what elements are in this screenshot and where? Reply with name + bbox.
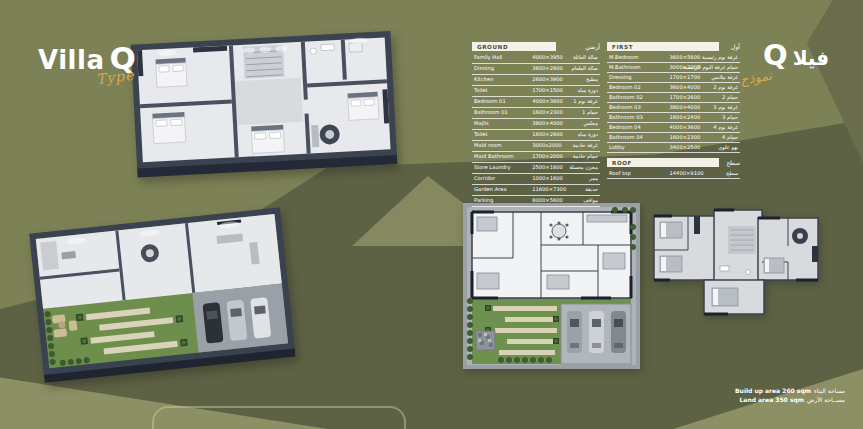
room-dimensions: 2500×1600 xyxy=(532,163,563,173)
room-name: Bedroom 04 xyxy=(609,123,641,132)
brand-title: VillaQ Type xyxy=(38,40,136,76)
table-row: M.Bathroom 3000×2000 حمام غرفة النوم الر… xyxy=(607,63,740,73)
room-name: Kitchen xyxy=(474,75,494,85)
room-name: Toilet xyxy=(474,130,488,140)
room-dimensions: 1700×1500 xyxy=(532,86,563,96)
room-dimensions: 3800×4000 xyxy=(532,119,563,129)
first-table-rows: M.Bedroom 3600×5600 غرفة نوم رئيسية M.Ba… xyxy=(607,53,740,153)
table-row: Roof top 14400×9100 سطح xyxy=(607,169,740,179)
first-floor-table: FIRST أول M.Bedroom 3600×5600 غرفة نوم ر… xyxy=(607,42,740,179)
first-header-bar: FIRST xyxy=(607,42,719,51)
land-area-line: Land area 350 sqmمســاحة الأرض xyxy=(735,395,845,404)
room-name: Bedroom 01 xyxy=(474,97,506,107)
room-name: M.Bedroom xyxy=(609,53,639,62)
build-up-area-label-arabic: مساحة البناء xyxy=(814,387,845,394)
room-dimensions: 1600×2300 xyxy=(532,108,563,118)
decorative-rounded-frame xyxy=(152,406,406,429)
room-name-arabic: سطح xyxy=(726,169,738,178)
room-dimensions: 4000×3600 xyxy=(532,97,563,107)
table-row: Toilet 1700×1500 دورة مياه xyxy=(472,86,600,97)
room-name: Toilet xyxy=(474,86,488,96)
table-row: Bedroom 04 4000×3600 غرفة نوم 4 xyxy=(607,123,740,133)
room-name-arabic: حديقة xyxy=(585,185,598,195)
room-dimensions: 1700×1700 xyxy=(670,73,701,82)
first-header-label: FIRST xyxy=(612,44,633,50)
room-name-arabic: صالة العائلة xyxy=(573,53,598,63)
room-name-arabic: غرفة نوم 1 xyxy=(573,97,598,107)
ground-floor-table: GROUND أرضي Family Hall 4000×3950 صالة ا… xyxy=(472,42,600,207)
room-name-arabic: غرفة نوم 2 xyxy=(713,83,738,92)
table-row: Bathroom 04 1600×2300 حمام 4 xyxy=(607,133,740,143)
table-row: M.Bedroom 3600×5600 غرفة نوم رئيسية xyxy=(607,53,740,63)
room-name: Corridor xyxy=(474,174,495,184)
ground-header-label: GROUND xyxy=(477,44,508,50)
room-name: M.Bathroom xyxy=(609,63,641,72)
land-area-label-arabic: مســاحة الأرض xyxy=(807,396,845,403)
table-row: Family Hall 4000×3950 صالة العائلة xyxy=(472,53,600,64)
room-name-arabic: حمام 3 xyxy=(722,113,738,122)
room-dimensions: 3000x2000 xyxy=(532,141,561,151)
table-row: Bedroom 01 4000×3600 غرفة نوم 1 xyxy=(472,97,600,108)
roof-header-label-arabic: سطح xyxy=(726,158,740,167)
room-dimensions: 1600×2300 xyxy=(670,133,701,142)
room-dimensions: 11600×7300 xyxy=(532,185,566,195)
build-up-area-label: Build up area 260 sqm xyxy=(735,387,811,394)
table-row: Bedroom 03 3800×4000 غرفة نوم 3 xyxy=(607,103,740,113)
floorplan-2d-first xyxy=(650,206,822,319)
roof-header-bar: ROOF xyxy=(607,158,719,167)
table-row: Parking 8000×5600 مواقف xyxy=(472,196,600,207)
floorplan-2d-ground xyxy=(463,203,640,369)
room-name-arabic: حمام غرفة النوم الرئيسية xyxy=(683,63,738,72)
room-name-arabic: حمام 4 xyxy=(722,133,738,142)
roof-table-header: ROOF سطح xyxy=(607,158,740,168)
room-name: Majlis xyxy=(474,119,489,129)
table-row: Bathroom 01 1600×2300 حمام 1 xyxy=(472,108,600,119)
room-name: Parking xyxy=(474,196,493,206)
room-name-arabic: مجلس xyxy=(584,119,598,129)
room-name: Roof top xyxy=(609,169,631,178)
table-row: Bathroom 03 1600×2400 حمام 3 xyxy=(607,113,740,123)
room-dimensions: 4000×3600 xyxy=(670,123,701,132)
room-name-arabic: غرفة نوم 3 xyxy=(713,103,738,112)
ground-header-label-arabic: أرضي xyxy=(585,42,600,51)
room-dimensions: 8000×5600 xyxy=(532,196,563,206)
table-row: Majlis 3800×4000 مجلس xyxy=(472,119,600,130)
render-3d-first-floor xyxy=(100,0,420,208)
table-row: Bathroom 02 1700×2600 حمام 2 xyxy=(607,93,740,103)
room-name-arabic: صالة الطعام xyxy=(571,64,598,74)
room-dimensions: 1000×1600 xyxy=(532,174,563,184)
room-dimensions: 1600×2400 xyxy=(670,113,701,122)
room-name: Garden Area xyxy=(474,185,507,195)
brand-q-letter-arabic: Q xyxy=(763,38,788,72)
table-row: Lobby 3400×2500 بهو علوي xyxy=(607,143,740,153)
room-dimensions: 1600×2600 xyxy=(532,130,563,140)
room-name-arabic: دورة مياه xyxy=(578,130,598,140)
room-name: Maid Bathroom xyxy=(474,152,514,162)
table-row: Dinning 3600×2600 صالة الطعام xyxy=(472,64,600,75)
room-name: Dressing xyxy=(609,73,632,82)
brand-villa-text-arabic: فيلا xyxy=(793,46,829,70)
room-name: Lobby xyxy=(609,143,625,152)
room-name-arabic: حمام 1 xyxy=(582,108,598,118)
room-name-arabic: حمام خادمة xyxy=(573,152,598,162)
room-dimensions: 14400×9100 xyxy=(670,169,704,178)
room-name: Bedroom 02 xyxy=(609,83,641,92)
room-dimensions: 2600×3900 xyxy=(532,75,563,85)
table-row: Maid Bathroom 1700×2000 حمام خادمة xyxy=(472,152,600,163)
room-name-arabic: غرفة نوم رئيسية xyxy=(702,53,738,62)
room-dimensions: 1700×2000 xyxy=(532,152,563,162)
table-row: Dressing 1700×1700 غرفة ملابس xyxy=(607,73,740,83)
room-name: Dinning xyxy=(474,64,494,74)
room-name: Bathroom 04 xyxy=(609,133,643,142)
room-name: Bathroom 02 xyxy=(609,93,643,102)
room-name-arabic: مواقف xyxy=(583,196,598,206)
ground-table-rows: Family Hall 4000×3950 صالة العائلة Dinni… xyxy=(472,53,600,207)
room-name: Store Laundry xyxy=(474,163,511,173)
table-row: Kitchen 2600×3900 مطبخ xyxy=(472,75,600,86)
room-dimensions: 3600×2600 xyxy=(532,64,563,74)
ground-header-bar: GROUND xyxy=(472,42,556,51)
room-name: Bathroom 03 xyxy=(609,113,643,122)
room-name-arabic: غرفة ملابس xyxy=(712,73,738,82)
room-name-arabic: مخزن مغسلة xyxy=(569,163,598,173)
table-row: Toilet 1600×2600 دورة مياه xyxy=(472,130,600,141)
room-dimensions: 4000×3950 xyxy=(532,53,563,63)
room-name-arabic: غرفة نوم 4 xyxy=(713,123,738,132)
room-name-arabic: حمام 2 xyxy=(722,93,738,102)
room-name-arabic: مطبخ xyxy=(586,75,598,85)
room-name: Maid room xyxy=(474,141,501,151)
room-name-arabic: دورة مياه xyxy=(578,86,598,96)
room-name: Family Hall xyxy=(474,53,502,63)
first-table-header: FIRST أول xyxy=(607,42,740,52)
brand-title-arabic: فيلا Q نموذج xyxy=(742,38,850,72)
roof-table-rows: Roof top 14400×9100 سطح xyxy=(607,169,740,179)
room-dimensions: 3600×4000 xyxy=(670,83,701,92)
room-name-arabic: ممر xyxy=(589,174,598,184)
brochure-page: VillaQ Type فيلا Q نموذج GROUND أرضي Fam… xyxy=(0,0,863,429)
area-summary: Build up area 260 sqmمساحة البناء Land a… xyxy=(735,386,845,404)
table-row: Garden Area 11600×7300 حديقة xyxy=(472,185,600,196)
table-row: Maid room 3000x2000 غرفة خادمة xyxy=(472,141,600,152)
room-name: Bathroom 01 xyxy=(474,108,508,118)
room-dimensions: 3800×4000 xyxy=(670,103,701,112)
render-3d-ground-floor xyxy=(26,192,300,392)
room-dimensions: 1700×2600 xyxy=(670,93,701,102)
room-name-arabic: غرفة خادمة xyxy=(573,141,598,151)
roof-table: ROOF سطح Roof top 14400×9100 سطح xyxy=(607,158,740,179)
land-area-label: Land area 350 sqm xyxy=(740,396,804,403)
room-name: Bedroom 03 xyxy=(609,103,641,112)
room-dimensions: 3400×2500 xyxy=(670,143,701,152)
ground-table-header: GROUND أرضي xyxy=(472,42,600,52)
roof-header-label: ROOF xyxy=(612,160,632,166)
table-row: Bedroom 02 3600×4000 غرفة نوم 2 xyxy=(607,83,740,93)
brand-script-arabic: نموذج xyxy=(739,68,773,88)
first-header-label-arabic: أول xyxy=(731,42,740,51)
room-name-arabic: بهو علوي xyxy=(718,143,738,152)
room-dimensions: 3600×5600 xyxy=(670,53,701,62)
table-row: Corridor 1000×1600 ممر xyxy=(472,174,600,185)
table-row: Store Laundry 2500×1600 مخزن مغسلة xyxy=(472,163,600,174)
build-up-area-line: Build up area 260 sqmمساحة البناء xyxy=(735,386,845,395)
